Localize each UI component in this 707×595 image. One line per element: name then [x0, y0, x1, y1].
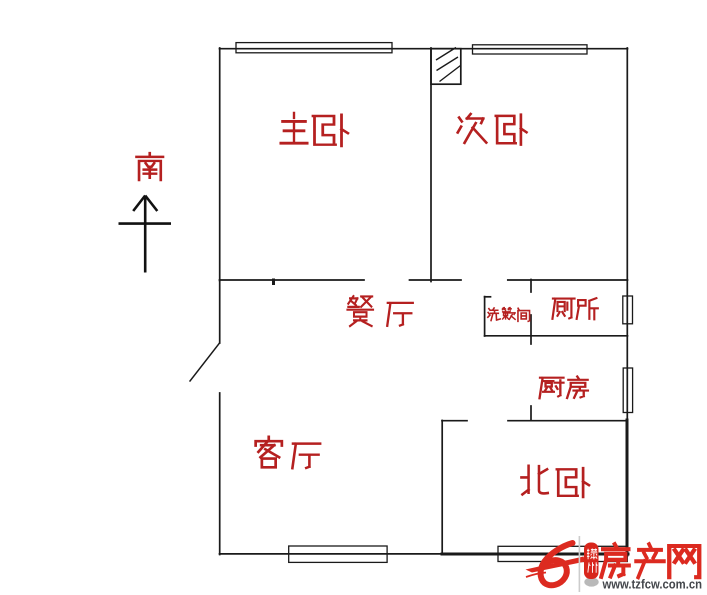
svg-text:www.tzfcw.com.cn: www.tzfcw.com.cn [602, 578, 702, 592]
